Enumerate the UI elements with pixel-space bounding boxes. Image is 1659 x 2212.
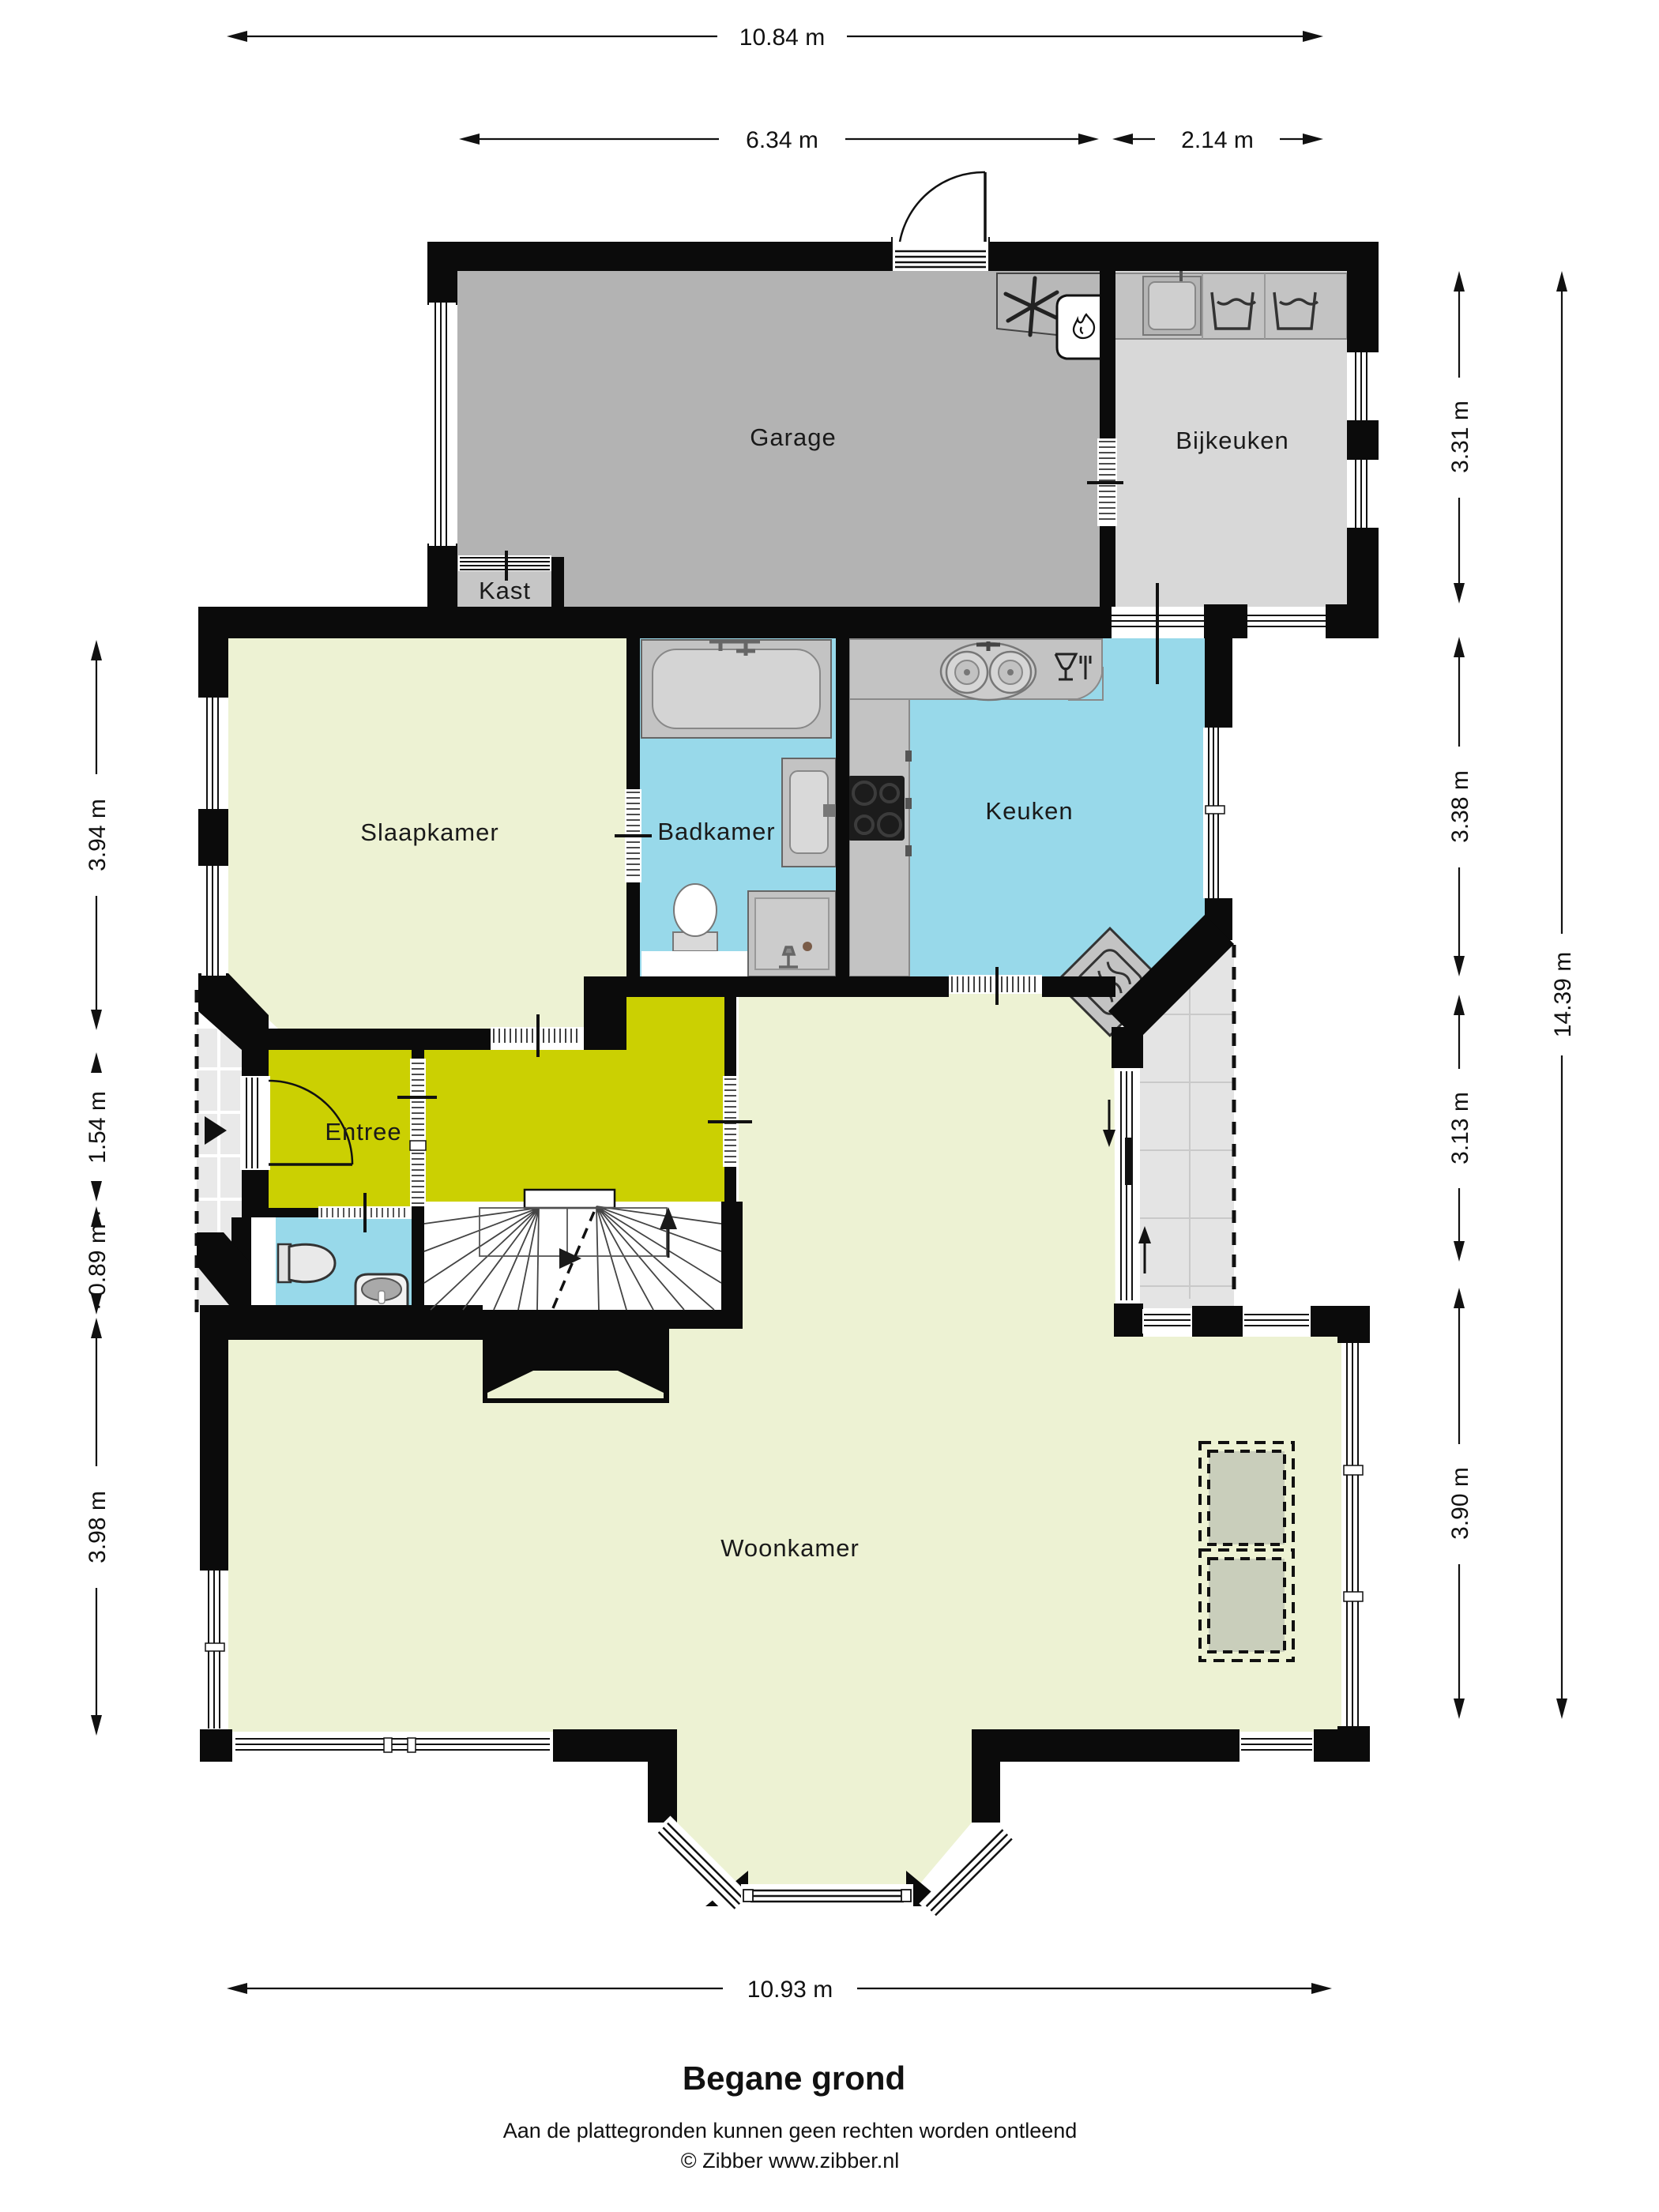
svg-text:Aan de plattegronden kunnen ge: Aan de plattegronden kunnen geen rechten… bbox=[503, 2119, 1078, 2142]
svg-text:3.31 m: 3.31 m bbox=[1447, 401, 1473, 473]
svg-text:Kast: Kast bbox=[479, 577, 531, 604]
svg-text:Keuken: Keuken bbox=[985, 797, 1073, 825]
svg-text:1.54 m: 1.54 m bbox=[85, 1091, 111, 1164]
svg-text:Entree: Entree bbox=[325, 1118, 401, 1145]
svg-text:3.38 m: 3.38 m bbox=[1447, 770, 1473, 843]
svg-text:3.13 m: 3.13 m bbox=[1447, 1092, 1473, 1164]
svg-text:Slaapkamer: Slaapkamer bbox=[360, 818, 498, 846]
svg-text:10.93 m: 10.93 m bbox=[747, 1977, 833, 2003]
svg-text:· 0.89 m ·: · 0.89 m · bbox=[85, 1209, 111, 1311]
svg-text:14.39 m: 14.39 m bbox=[1550, 952, 1576, 1037]
svg-text:2.14 m: 2.14 m bbox=[1181, 127, 1254, 153]
svg-text:10.84 m: 10.84 m bbox=[739, 24, 825, 51]
svg-text:3.94 m: 3.94 m bbox=[85, 799, 111, 871]
svg-text:Bijkeuken: Bijkeuken bbox=[1176, 427, 1288, 454]
svg-text:3.90 m: 3.90 m bbox=[1447, 1467, 1473, 1540]
svg-text:Badkamer: Badkamer bbox=[657, 818, 775, 845]
svg-text:Begane grond: Begane grond bbox=[683, 2060, 905, 2097]
svg-text:© Zibber www.zibber.nl: © Zibber www.zibber.nl bbox=[681, 2149, 900, 2172]
svg-text:6.34 m: 6.34 m bbox=[746, 127, 818, 153]
svg-text:Garage: Garage bbox=[750, 423, 836, 451]
svg-text:Woonkamer: Woonkamer bbox=[720, 1534, 860, 1562]
svg-text:3.98 m: 3.98 m bbox=[85, 1491, 111, 1563]
